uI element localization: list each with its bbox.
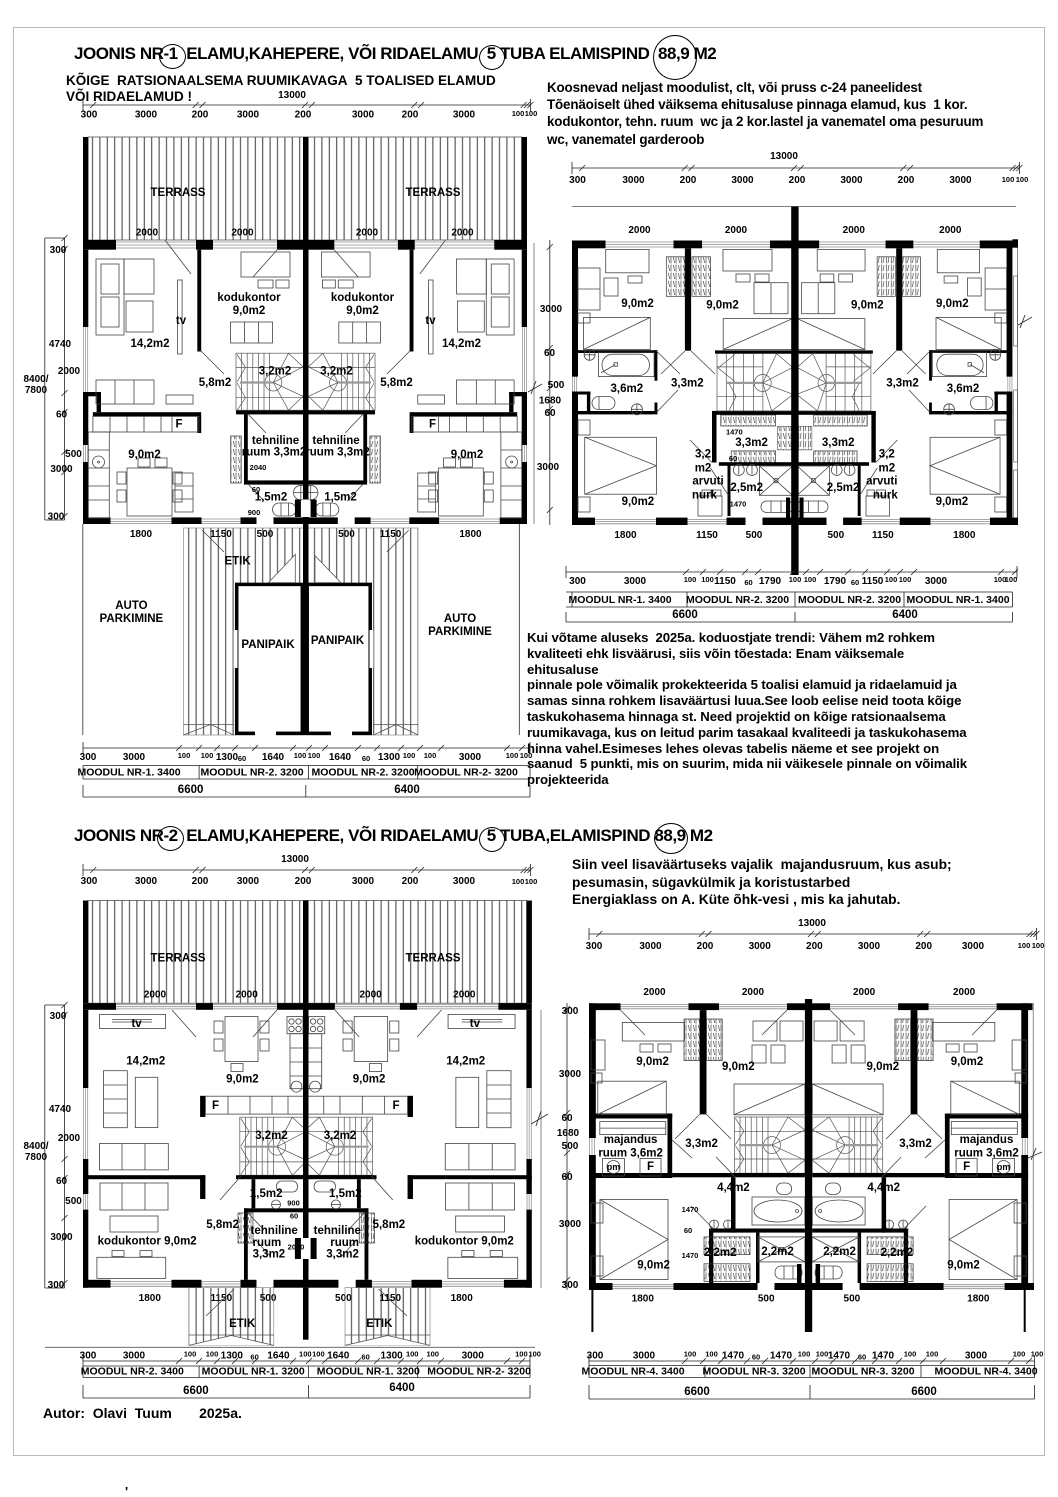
svg-text:ETIK: ETIK xyxy=(366,1318,393,1330)
svg-text:300: 300 xyxy=(50,245,67,256)
svg-text:3000: 3000 xyxy=(135,110,158,121)
svg-text:PARKIMINE: PARKIMINE xyxy=(428,626,492,638)
svg-text:3000: 3000 xyxy=(622,175,645,186)
svg-text:1800: 1800 xyxy=(614,530,637,541)
svg-text:60: 60 xyxy=(752,1353,760,1362)
svg-text:14,2m2: 14,2m2 xyxy=(442,338,481,350)
svg-text:200: 200 xyxy=(402,876,419,887)
svg-text:3000: 3000 xyxy=(453,110,476,121)
svg-text:4740: 4740 xyxy=(49,339,72,350)
svg-text:MOODUL NR-1. 3400: MOODUL NR-1. 3400 xyxy=(77,767,180,779)
svg-text:900: 900 xyxy=(287,1199,300,1208)
svg-text:100: 100 xyxy=(804,575,817,584)
svg-text:6400: 6400 xyxy=(892,609,918,621)
svg-text:ruum 3,3m2: ruum 3,3m2 xyxy=(242,447,307,459)
svg-text:MOODUL NR-2. 3200: MOODUL NR-2. 3200 xyxy=(200,767,303,779)
svg-text:3000: 3000 xyxy=(237,110,260,121)
svg-text:500: 500 xyxy=(758,1294,775,1305)
svg-text:9,0m2: 9,0m2 xyxy=(621,298,654,310)
svg-text:200: 200 xyxy=(192,110,209,121)
svg-text:14,2m2: 14,2m2 xyxy=(126,1056,165,1068)
svg-text:300: 300 xyxy=(562,1006,579,1017)
svg-text:1680: 1680 xyxy=(539,396,562,407)
svg-text:60: 60 xyxy=(56,1176,68,1187)
svg-text:9,0m2: 9,0m2 xyxy=(353,1073,386,1085)
svg-text:100: 100 xyxy=(904,1350,917,1359)
svg-text:100: 100 xyxy=(1018,941,1031,950)
svg-text:100: 100 xyxy=(528,1350,541,1359)
svg-text:9,0m2: 9,0m2 xyxy=(947,1260,980,1272)
svg-text:tehniline: tehniline xyxy=(252,435,299,447)
svg-text:2,2m2: 2,2m2 xyxy=(761,1246,794,1258)
svg-text:60: 60 xyxy=(684,1226,692,1235)
svg-text:9,0m2: 9,0m2 xyxy=(951,1056,984,1068)
svg-text:100: 100 xyxy=(512,109,525,118)
svg-text:ruum: ruum xyxy=(253,1237,282,1249)
svg-text:3000: 3000 xyxy=(965,1351,988,1362)
svg-text:2000: 2000 xyxy=(356,228,379,239)
svg-text:9,0m2: 9,0m2 xyxy=(722,1061,755,1073)
svg-text:100: 100 xyxy=(705,1350,718,1359)
svg-text:kodukontor: kodukontor xyxy=(217,292,281,304)
svg-text:3000: 3000 xyxy=(453,876,476,887)
svg-text:6600: 6600 xyxy=(183,1385,209,1397)
svg-text:3,3m2: 3,3m2 xyxy=(735,437,768,449)
svg-text:MOODUL NR-3. 3200: MOODUL NR-3. 3200 xyxy=(702,1366,805,1378)
svg-text:6600: 6600 xyxy=(672,609,698,621)
svg-text:3000: 3000 xyxy=(639,941,662,952)
svg-text:13000: 13000 xyxy=(770,151,798,162)
svg-text:2000: 2000 xyxy=(853,987,876,998)
svg-text:900: 900 xyxy=(248,508,261,517)
svg-text:300: 300 xyxy=(569,175,586,186)
svg-text:300: 300 xyxy=(48,1280,65,1291)
svg-text:500: 500 xyxy=(65,1196,82,1207)
svg-text:kodukontor: kodukontor xyxy=(331,292,395,304)
svg-text:3000: 3000 xyxy=(731,175,754,186)
svg-text:ruum 3,6m2: ruum 3,6m2 xyxy=(598,1148,663,1160)
svg-text:arvuti: arvuti xyxy=(866,476,897,488)
svg-text:1800: 1800 xyxy=(967,1294,990,1305)
svg-text:1470: 1470 xyxy=(722,1351,745,1362)
svg-text:100: 100 xyxy=(525,109,538,118)
svg-text:pm: pm xyxy=(607,1162,621,1172)
svg-text:13000: 13000 xyxy=(281,854,309,865)
svg-text:3000: 3000 xyxy=(123,1351,146,1362)
svg-text:MOODUL NR-3. 3200: MOODUL NR-3. 3200 xyxy=(811,1366,914,1378)
svg-text:100: 100 xyxy=(1031,1350,1044,1359)
svg-text:9,0m2: 9,0m2 xyxy=(866,1061,899,1073)
svg-text:6400: 6400 xyxy=(394,784,420,796)
svg-text:300: 300 xyxy=(50,1011,67,1022)
svg-text:1640: 1640 xyxy=(329,752,352,763)
svg-text:m2: m2 xyxy=(695,463,712,475)
svg-text:MOODUL NR-1. 3400: MOODUL NR-1. 3400 xyxy=(568,594,671,606)
svg-text:tv: tv xyxy=(176,315,187,327)
svg-text:2040: 2040 xyxy=(250,463,267,472)
svg-text:100: 100 xyxy=(1002,175,1015,184)
svg-text:100: 100 xyxy=(424,751,437,760)
svg-text:60: 60 xyxy=(361,1353,369,1362)
svg-text:100: 100 xyxy=(178,751,191,760)
svg-text:2,5m2: 2,5m2 xyxy=(827,482,860,494)
svg-text:3000: 3000 xyxy=(559,1069,582,1080)
svg-text:200: 200 xyxy=(789,175,806,186)
svg-text:100: 100 xyxy=(1005,575,1018,584)
svg-text:pm: pm xyxy=(997,1162,1011,1172)
svg-text:MOODUL NR-4. 3400: MOODUL NR-4. 3400 xyxy=(581,1366,684,1378)
svg-text:60: 60 xyxy=(362,754,370,763)
svg-text:100: 100 xyxy=(789,575,802,584)
svg-text:TERRASS: TERRASS xyxy=(151,187,206,199)
svg-text:6400: 6400 xyxy=(389,1382,415,1394)
svg-text:ruum: ruum xyxy=(330,1237,359,1249)
svg-text:1150: 1150 xyxy=(696,530,718,541)
svg-text:ruum 3,6m2: ruum 3,6m2 xyxy=(954,1148,1019,1160)
svg-text:PANIPAIK: PANIPAIK xyxy=(241,639,295,651)
svg-text:3000: 3000 xyxy=(135,876,158,887)
svg-text:100: 100 xyxy=(798,1350,811,1359)
svg-text:9,0m2: 9,0m2 xyxy=(451,449,484,461)
svg-text:60: 60 xyxy=(744,578,752,587)
svg-text:1800: 1800 xyxy=(459,529,482,540)
svg-text:tehniline: tehniline xyxy=(251,1225,298,1237)
svg-text:5,8m2: 5,8m2 xyxy=(373,1219,406,1231)
svg-text:9,0m2: 9,0m2 xyxy=(936,496,969,508)
svg-text:6600: 6600 xyxy=(178,784,204,796)
svg-text:300: 300 xyxy=(587,1351,604,1362)
svg-text:3000: 3000 xyxy=(352,876,375,887)
svg-text:100: 100 xyxy=(520,751,533,760)
svg-text:TERRASS: TERRASS xyxy=(406,953,461,965)
svg-text:MOODUL NR-2. 3200: MOODUL NR-2. 3200 xyxy=(798,594,901,606)
svg-text:ETIK: ETIK xyxy=(229,1318,256,1330)
svg-text:100: 100 xyxy=(701,575,714,584)
svg-text:8400/: 8400/ xyxy=(23,1141,48,1152)
svg-text:3,2m2: 3,2m2 xyxy=(255,1130,288,1142)
svg-text:kodukontor 9,0m2: kodukontor 9,0m2 xyxy=(415,1236,514,1248)
svg-text:3000: 3000 xyxy=(858,941,881,952)
svg-text:500: 500 xyxy=(746,530,763,541)
svg-text:60: 60 xyxy=(858,1353,866,1362)
svg-text:1300: 1300 xyxy=(221,1351,244,1362)
svg-text:100: 100 xyxy=(1016,175,1029,184)
svg-text:4,4m2: 4,4m2 xyxy=(867,1182,900,1194)
svg-text:TERRASS: TERRASS xyxy=(406,187,461,199)
svg-text:300: 300 xyxy=(586,941,603,952)
svg-text:1470: 1470 xyxy=(770,1351,793,1362)
svg-text:1150: 1150 xyxy=(862,576,884,587)
svg-text:100: 100 xyxy=(294,751,307,760)
svg-text:300: 300 xyxy=(80,752,97,763)
svg-text:100: 100 xyxy=(1013,1350,1026,1359)
svg-text:3000: 3000 xyxy=(123,752,146,763)
svg-text:1470: 1470 xyxy=(730,500,747,509)
svg-text:14,2m2: 14,2m2 xyxy=(130,338,169,350)
svg-text:1800: 1800 xyxy=(139,1293,162,1304)
svg-text:F: F xyxy=(212,1100,219,1112)
svg-text:14,2m2: 14,2m2 xyxy=(446,1056,485,1068)
svg-text:1470: 1470 xyxy=(872,1351,895,1362)
svg-text:500: 500 xyxy=(562,1141,579,1152)
svg-text:2000: 2000 xyxy=(359,990,382,1001)
svg-text:MOODUL NR-1. 3200: MOODUL NR-1. 3200 xyxy=(202,1366,305,1378)
svg-text:3,2m2: 3,2m2 xyxy=(320,366,353,378)
svg-text:6600: 6600 xyxy=(911,1386,937,1398)
svg-text:majandus: majandus xyxy=(960,1134,1014,1146)
svg-text:3000: 3000 xyxy=(459,752,482,763)
svg-text:m2: m2 xyxy=(878,463,895,475)
svg-text:MOODUL NR-2. 3200: MOODUL NR-2. 3200 xyxy=(686,594,789,606)
svg-text:3000: 3000 xyxy=(949,175,972,186)
svg-text:F: F xyxy=(175,419,182,431)
svg-text:60: 60 xyxy=(729,454,737,463)
svg-text:7800: 7800 xyxy=(25,385,48,396)
svg-text:100: 100 xyxy=(1032,941,1045,950)
svg-text:100: 100 xyxy=(816,1350,829,1359)
svg-text:3000: 3000 xyxy=(624,576,647,587)
svg-text:4,4m2: 4,4m2 xyxy=(717,1182,750,1194)
svg-text:2000: 2000 xyxy=(453,990,476,1001)
svg-text:100: 100 xyxy=(426,1350,439,1359)
svg-text:500: 500 xyxy=(844,1294,861,1305)
svg-text:MOODUL NR-4. 3400: MOODUL NR-4. 3400 xyxy=(934,1366,1037,1378)
svg-text:1150: 1150 xyxy=(714,576,736,587)
svg-text:1640: 1640 xyxy=(262,752,285,763)
svg-text:2000: 2000 xyxy=(451,228,474,239)
svg-text:3000: 3000 xyxy=(237,876,260,887)
svg-text:60: 60 xyxy=(544,348,556,359)
svg-text:100: 100 xyxy=(515,1350,528,1359)
svg-text:100: 100 xyxy=(299,1350,312,1359)
svg-text:2000: 2000 xyxy=(144,990,167,1001)
svg-text:3,3m2: 3,3m2 xyxy=(899,1138,932,1150)
svg-text:tehniline: tehniline xyxy=(312,435,359,447)
svg-text:F: F xyxy=(647,1161,654,1173)
svg-text:4740: 4740 xyxy=(49,1104,72,1115)
svg-text:9,0m2: 9,0m2 xyxy=(706,300,739,312)
svg-text:1,5m2: 1,5m2 xyxy=(329,1188,362,1200)
svg-text:arvuti: arvuti xyxy=(692,476,723,488)
svg-text:MOODUL NR-2. 3400: MOODUL NR-2. 3400 xyxy=(81,1366,184,1378)
svg-text:3,3m2: 3,3m2 xyxy=(822,437,855,449)
svg-text:3,6m2: 3,6m2 xyxy=(610,383,643,395)
svg-text:100: 100 xyxy=(525,877,538,886)
svg-text:2000: 2000 xyxy=(843,225,866,236)
svg-text:300: 300 xyxy=(80,1351,97,1362)
svg-text:1300: 1300 xyxy=(380,1351,403,1362)
svg-text:5,8m2: 5,8m2 xyxy=(199,377,232,389)
svg-text:nurk: nurk xyxy=(692,490,718,502)
svg-text:MOODUL NR-1. 3400: MOODUL NR-1. 3400 xyxy=(906,594,1009,606)
svg-text:3000: 3000 xyxy=(962,941,985,952)
svg-text:2000: 2000 xyxy=(643,987,666,998)
svg-text:1470: 1470 xyxy=(726,428,743,437)
svg-text:3,3m2: 3,3m2 xyxy=(685,1138,718,1150)
svg-text:200: 200 xyxy=(697,941,714,952)
svg-text:200: 200 xyxy=(295,110,312,121)
svg-text:300: 300 xyxy=(81,110,98,121)
svg-text:kodukontor 9,0m2: kodukontor 9,0m2 xyxy=(98,1236,197,1248)
svg-text:200: 200 xyxy=(898,175,915,186)
svg-text:2000: 2000 xyxy=(742,987,765,998)
svg-text:tehniline: tehniline xyxy=(314,1225,361,1237)
svg-text:100: 100 xyxy=(506,751,519,760)
svg-text:3000: 3000 xyxy=(840,175,863,186)
svg-text:1150: 1150 xyxy=(872,530,894,541)
svg-text:2000: 2000 xyxy=(231,228,254,239)
svg-text:3000: 3000 xyxy=(633,1351,656,1362)
svg-text:3000: 3000 xyxy=(462,1351,485,1362)
svg-text:F: F xyxy=(392,1100,399,1112)
svg-text:3000: 3000 xyxy=(50,464,73,475)
svg-text:100: 100 xyxy=(184,1350,197,1359)
svg-text:200: 200 xyxy=(915,941,932,952)
svg-text:2,5m2: 2,5m2 xyxy=(730,482,763,494)
svg-text:2000: 2000 xyxy=(628,225,651,236)
svg-text:9,0m2: 9,0m2 xyxy=(128,449,161,461)
svg-text:3000: 3000 xyxy=(537,462,560,473)
svg-text:1470: 1470 xyxy=(828,1351,851,1362)
svg-text:tv: tv xyxy=(131,1018,142,1030)
svg-text:1,5m2: 1,5m2 xyxy=(255,492,288,504)
svg-text:60: 60 xyxy=(544,408,556,419)
svg-text:2000: 2000 xyxy=(939,225,962,236)
svg-text:1790: 1790 xyxy=(759,576,782,587)
svg-text:300: 300 xyxy=(81,876,98,887)
svg-text:100: 100 xyxy=(684,575,697,584)
svg-text:100: 100 xyxy=(312,1350,325,1359)
svg-text:1790: 1790 xyxy=(824,576,847,587)
svg-text:3,2m2: 3,2m2 xyxy=(324,1130,357,1142)
svg-text:MOODUL NR-2- 3200: MOODUL NR-2- 3200 xyxy=(427,1366,531,1378)
svg-text:100: 100 xyxy=(926,1350,939,1359)
svg-text:60: 60 xyxy=(561,1172,573,1183)
svg-text:2,2m2: 2,2m2 xyxy=(881,1247,914,1259)
svg-text:F: F xyxy=(429,419,436,431)
svg-text:2,2m2: 2,2m2 xyxy=(823,1246,856,1258)
svg-text:AUTO: AUTO xyxy=(444,613,476,625)
svg-text:100: 100 xyxy=(406,1350,419,1359)
svg-text:3,2m2: 3,2m2 xyxy=(259,366,292,378)
svg-text:100: 100 xyxy=(899,575,912,584)
svg-text:nurk: nurk xyxy=(873,490,899,502)
svg-text:1800: 1800 xyxy=(953,530,976,541)
svg-text:PANIPAIK: PANIPAIK xyxy=(311,635,365,647)
svg-text:3000: 3000 xyxy=(50,1232,73,1243)
svg-text:3,2: 3,2 xyxy=(879,449,895,461)
svg-text:F: F xyxy=(963,1161,970,1173)
svg-text:3,3m2: 3,3m2 xyxy=(326,1249,359,1261)
svg-text:1800: 1800 xyxy=(130,529,153,540)
svg-text:100: 100 xyxy=(206,1350,219,1359)
svg-text:3,6m2: 3,6m2 xyxy=(947,383,980,395)
svg-text:tv: tv xyxy=(425,315,436,327)
svg-text:3000: 3000 xyxy=(559,1219,582,1230)
svg-text:1,5m2: 1,5m2 xyxy=(324,492,357,504)
svg-text:ruum 3,3m2: ruum 3,3m2 xyxy=(305,447,370,459)
svg-text:9,0m2: 9,0m2 xyxy=(637,1260,670,1272)
svg-text:3,3m2: 3,3m2 xyxy=(253,1249,286,1261)
svg-text:1470: 1470 xyxy=(682,1251,699,1260)
svg-text:1300: 1300 xyxy=(378,752,401,763)
svg-text:9,0m2: 9,0m2 xyxy=(226,1073,259,1085)
svg-text:200: 200 xyxy=(295,876,312,887)
svg-text:60: 60 xyxy=(250,1353,258,1362)
svg-text:1800: 1800 xyxy=(632,1294,655,1305)
svg-text:9,0m2: 9,0m2 xyxy=(851,300,884,312)
svg-text:2000: 2000 xyxy=(136,228,159,239)
svg-text:100: 100 xyxy=(201,751,214,760)
svg-text:1680: 1680 xyxy=(557,1128,580,1139)
svg-text:60: 60 xyxy=(561,1113,573,1124)
svg-text:1300: 1300 xyxy=(216,752,239,763)
svg-text:100: 100 xyxy=(684,1350,697,1359)
svg-text:1800: 1800 xyxy=(451,1293,474,1304)
svg-text:AUTO: AUTO xyxy=(115,600,147,612)
svg-text:1470: 1470 xyxy=(682,1205,699,1214)
svg-text:3000: 3000 xyxy=(540,304,563,315)
svg-text:7800: 7800 xyxy=(25,1152,48,1163)
svg-text:6600: 6600 xyxy=(684,1386,710,1398)
svg-text:5,8m2: 5,8m2 xyxy=(380,377,413,389)
svg-text:500: 500 xyxy=(65,449,82,460)
svg-text:3,3m2: 3,3m2 xyxy=(671,378,704,390)
svg-text:9,0m2: 9,0m2 xyxy=(636,1056,669,1068)
svg-text:8400/: 8400/ xyxy=(23,374,48,385)
svg-text:3000: 3000 xyxy=(749,941,772,952)
svg-text:majandus: majandus xyxy=(604,1134,658,1146)
svg-text:2000: 2000 xyxy=(236,990,259,1001)
svg-text:5,8m2: 5,8m2 xyxy=(206,1219,239,1231)
svg-text:ETIK: ETIK xyxy=(224,556,251,568)
svg-text:500: 500 xyxy=(548,380,565,391)
svg-text:3000: 3000 xyxy=(352,110,375,121)
svg-text:100: 100 xyxy=(403,751,416,760)
svg-text:300: 300 xyxy=(562,1280,579,1291)
svg-text:200: 200 xyxy=(680,175,697,186)
svg-text:60: 60 xyxy=(238,754,246,763)
svg-text:MOODUL NR-1. 3200: MOODUL NR-1. 3200 xyxy=(317,1366,420,1378)
svg-text:PARKIMINE: PARKIMINE xyxy=(100,613,164,625)
svg-text:MOODUL NR-2. 3200: MOODUL NR-2. 3200 xyxy=(311,767,414,779)
svg-text:TERRASS: TERRASS xyxy=(151,953,206,965)
svg-text:tv: tv xyxy=(470,1018,481,1030)
svg-text:2000: 2000 xyxy=(58,366,81,377)
svg-text:300: 300 xyxy=(569,576,586,587)
svg-text:500: 500 xyxy=(827,530,844,541)
svg-text:60: 60 xyxy=(851,578,859,587)
svg-text:9,0m2: 9,0m2 xyxy=(936,298,969,310)
svg-text:MOODUL NR-2- 3200: MOODUL NR-2- 3200 xyxy=(414,767,518,779)
svg-text:60: 60 xyxy=(56,410,68,421)
svg-text:100: 100 xyxy=(885,575,898,584)
svg-text:1640: 1640 xyxy=(327,1351,350,1362)
svg-text:1640: 1640 xyxy=(267,1351,290,1362)
svg-text:2000: 2000 xyxy=(725,225,748,236)
svg-text:3000: 3000 xyxy=(925,576,948,587)
svg-text:60: 60 xyxy=(290,1212,298,1221)
svg-text:3,3m2: 3,3m2 xyxy=(886,378,919,390)
svg-text:300: 300 xyxy=(48,512,65,523)
svg-text:200: 200 xyxy=(806,941,823,952)
svg-text:2,2m2: 2,2m2 xyxy=(704,1247,737,1259)
svg-text:13000: 13000 xyxy=(798,918,826,929)
svg-text:200: 200 xyxy=(192,876,209,887)
svg-text:9,0m2: 9,0m2 xyxy=(622,496,655,508)
svg-text:9,0m2: 9,0m2 xyxy=(346,305,379,317)
svg-text:100: 100 xyxy=(512,877,525,886)
